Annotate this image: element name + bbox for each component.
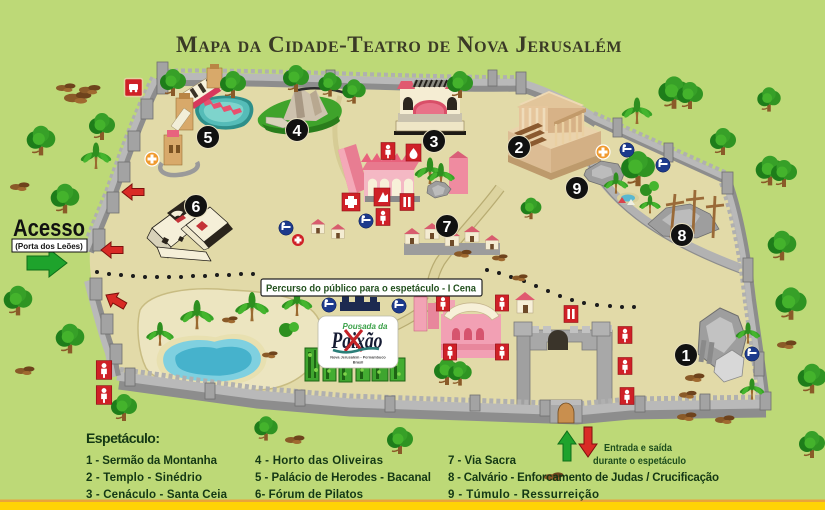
svg-text:8 - Calvário - Enforcamento de: 8 - Calvário - Enforcamento de Judas / C… [448, 472, 719, 484]
svg-text:1 - Sermão da Montanha: 1 - Sermão da Montanha [86, 455, 218, 467]
svg-text:Nova Jerusalém - Pernambuco: Nova Jerusalém - Pernambuco [330, 356, 386, 360]
svg-text:Espetáculo:: Espetáculo: [86, 430, 160, 446]
svg-text:4 - Horto das Oliveiras: 4 - Horto das Oliveiras [255, 455, 383, 467]
svg-text:6- Fórum de Pilatos: 6- Fórum de Pilatos [255, 489, 363, 501]
svg-text:9: 9 [573, 181, 582, 198]
svg-text:Mapa da Cidade-Teatro de Nova: Mapa da Cidade-Teatro de Nova Jerusalém [176, 32, 622, 57]
svg-text:8: 8 [678, 228, 687, 245]
svg-text:2: 2 [515, 140, 524, 157]
svg-text:Entrada e saída: Entrada e saída [604, 442, 672, 454]
svg-text:7: 7 [443, 219, 452, 236]
svg-text:Percurso do público para o esp: Percurso do público para o espetáculo - … [266, 283, 476, 295]
svg-text:2 - Templo - Sinédrio: 2 - Templo - Sinédrio [86, 472, 202, 484]
svg-text:5 - Palácio de Herodes - Bacan: 5 - Palácio de Herodes - Bacanal [255, 472, 431, 484]
svg-text:durante o espetáculo: durante o espetáculo [593, 455, 686, 467]
svg-text:Acesso: Acesso [13, 215, 85, 242]
svg-text:3: 3 [430, 134, 439, 151]
svg-text:4: 4 [293, 123, 302, 140]
svg-text:3 - Cenáculo - Santa Ceia: 3 - Cenáculo - Santa Ceia [86, 489, 228, 501]
svg-text:(Porta dos Leões): (Porta dos Leões) [15, 242, 83, 251]
svg-text:6: 6 [192, 199, 201, 216]
svg-text:7 - Via Sacra: 7 - Via Sacra [448, 455, 517, 467]
svg-text:9 - Túmulo - Ressurreição: 9 - Túmulo - Ressurreição [448, 489, 599, 501]
svg-text:Brasil: Brasil [353, 361, 364, 365]
svg-text:5: 5 [204, 130, 213, 147]
svg-text:1: 1 [682, 348, 691, 365]
